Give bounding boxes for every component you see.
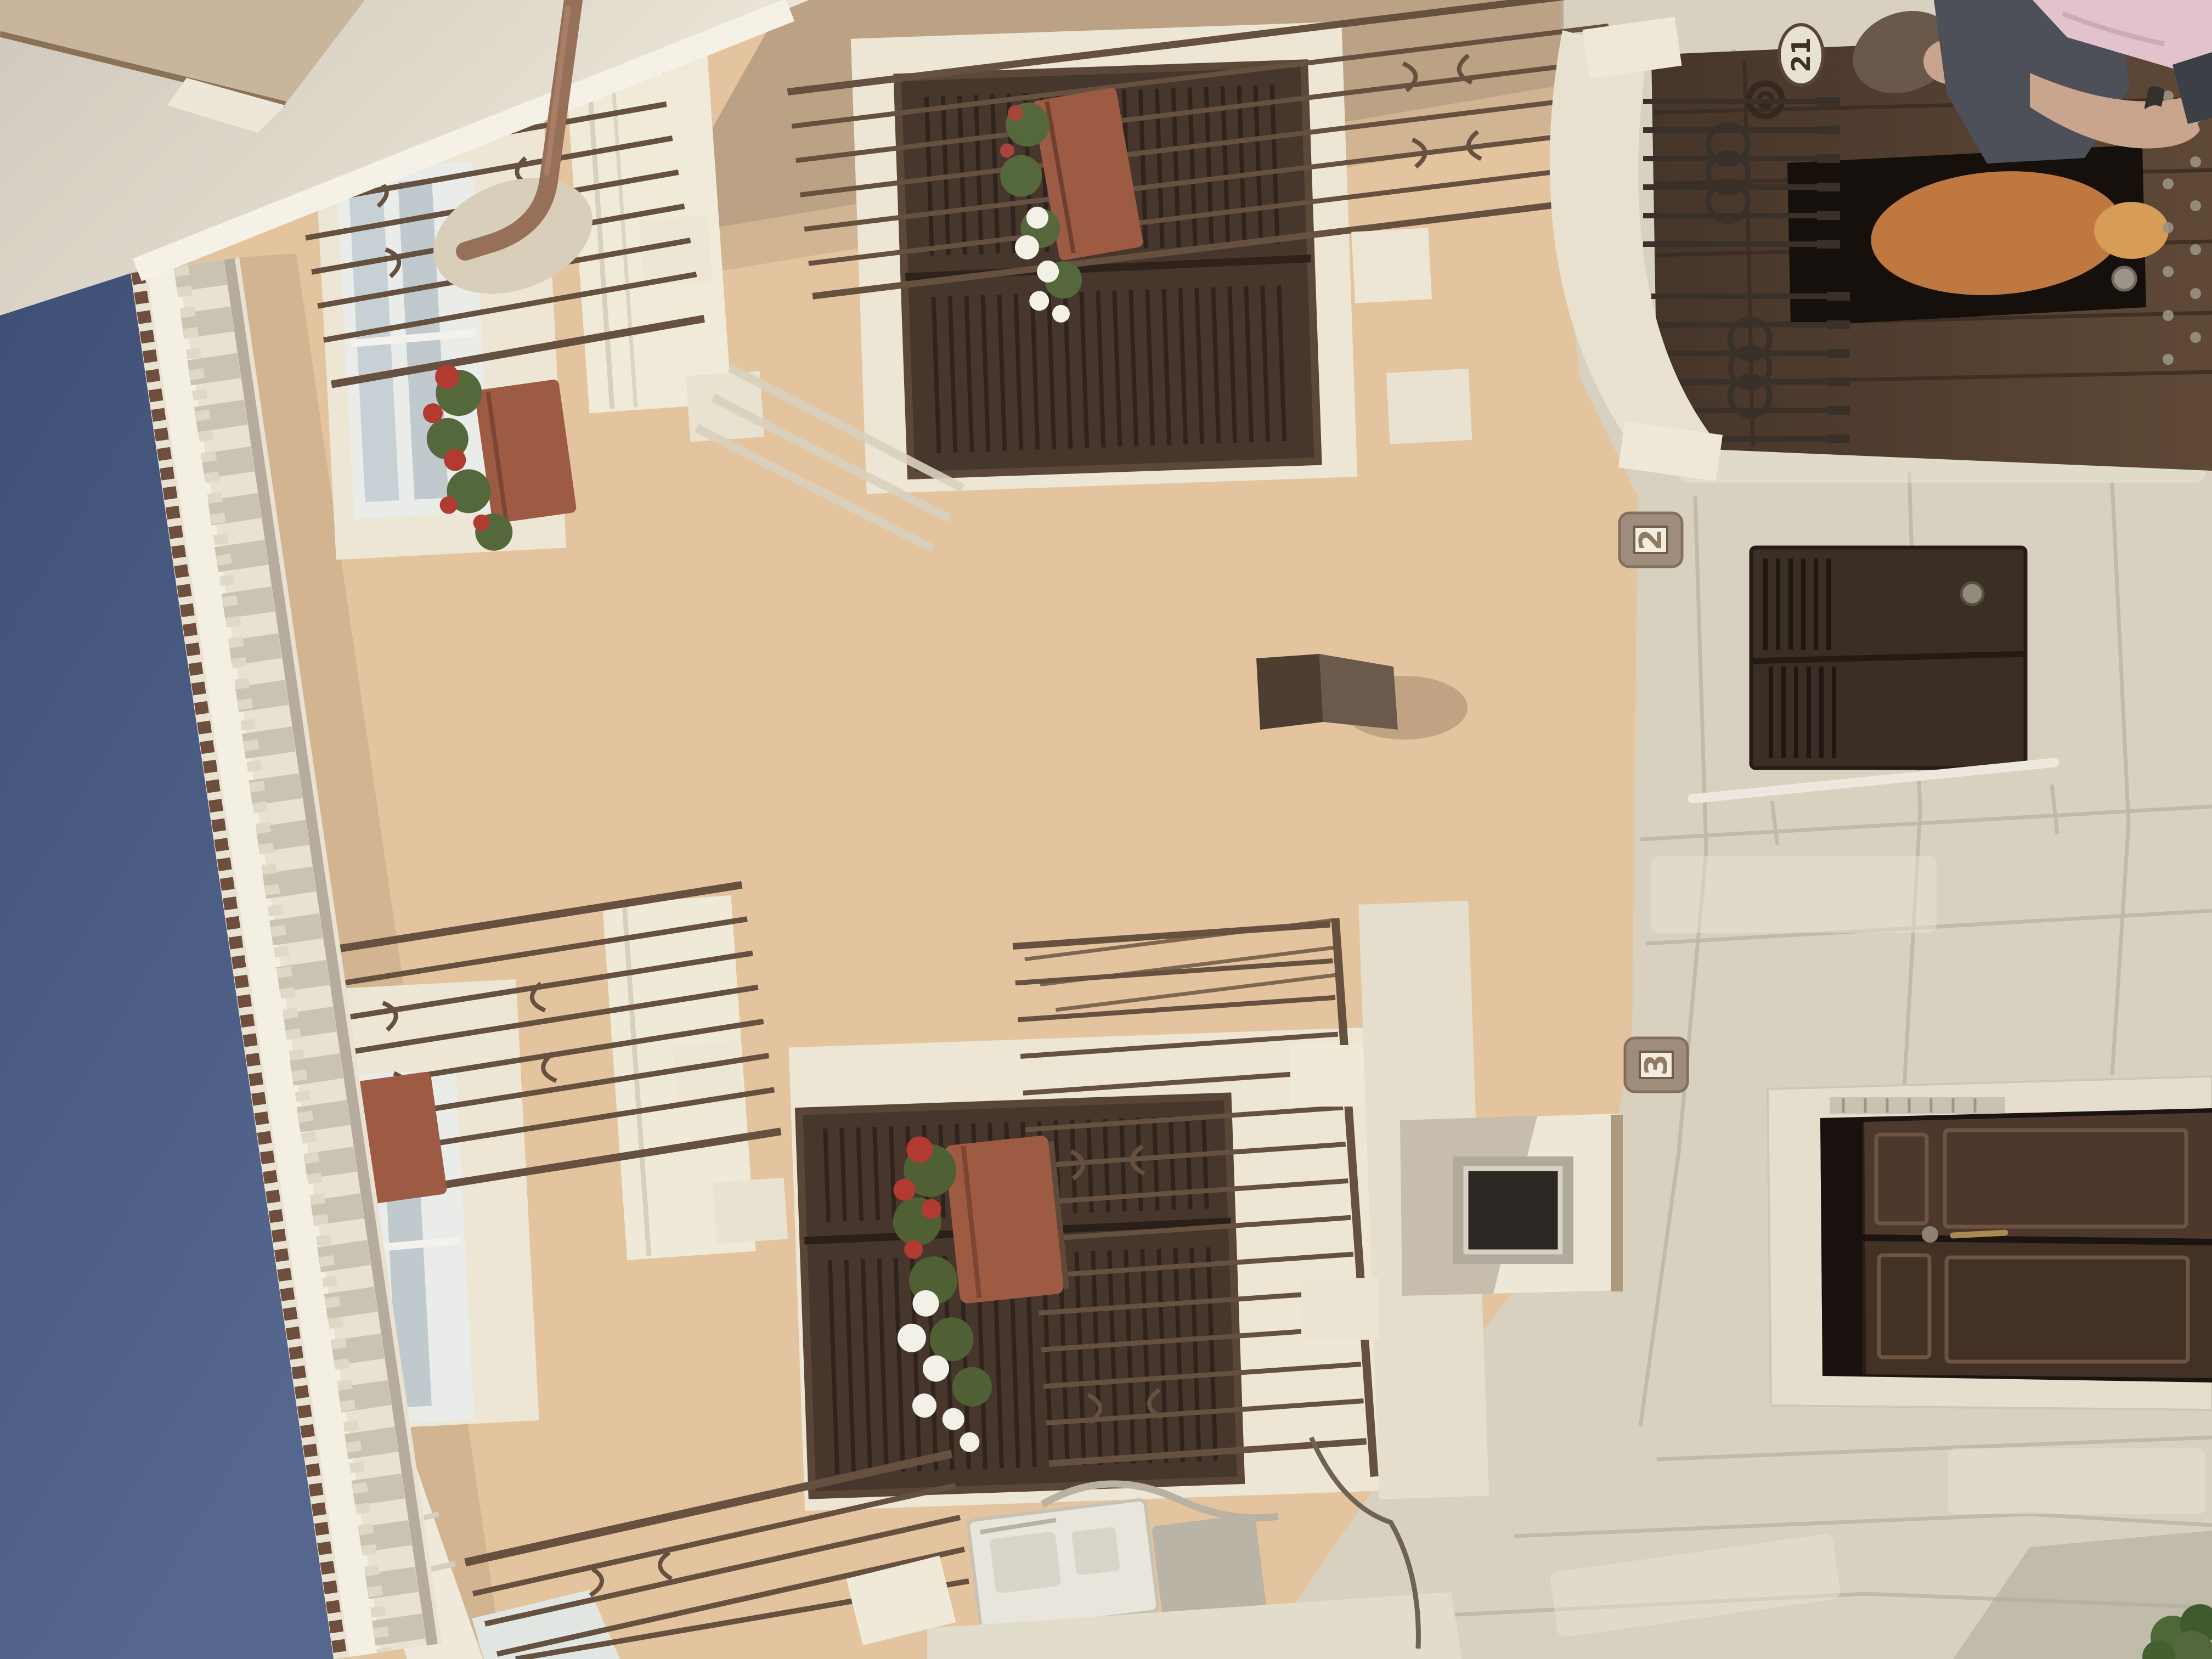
square-window bbox=[1400, 1114, 1623, 1296]
window-glass bbox=[1466, 1169, 1560, 1252]
facade-scene: 2 3 bbox=[0, 0, 2212, 1659]
keyhole bbox=[1922, 1226, 1938, 1243]
photo-building-facade: 2 3 bbox=[0, 0, 2212, 1659]
house-number-2: 2 bbox=[1633, 529, 1669, 551]
portal-plate-21: 21 bbox=[1779, 25, 1823, 85]
cellar-door-knob bbox=[1961, 583, 1983, 605]
window-frame-edge bbox=[1611, 1115, 1623, 1291]
person-inside-highlight bbox=[2094, 202, 2169, 259]
door-reveal-shadow bbox=[1820, 1117, 1866, 1376]
second-person-hand bbox=[2141, 105, 2169, 134]
house-number-plaque-2: 2 bbox=[1620, 513, 1682, 567]
portal-number-21: 21 bbox=[1786, 37, 1816, 72]
brass-handle bbox=[1953, 1233, 2005, 1235]
glass-doorknob bbox=[2113, 267, 2136, 290]
lamp-body bbox=[1256, 654, 1323, 730]
house-number-3: 3 bbox=[1639, 1054, 1674, 1076]
house-number-plaque-3: 3 bbox=[1625, 1038, 1688, 1092]
transom-vent bbox=[1830, 1097, 2005, 1114]
entry-door bbox=[1768, 1076, 2212, 1410]
